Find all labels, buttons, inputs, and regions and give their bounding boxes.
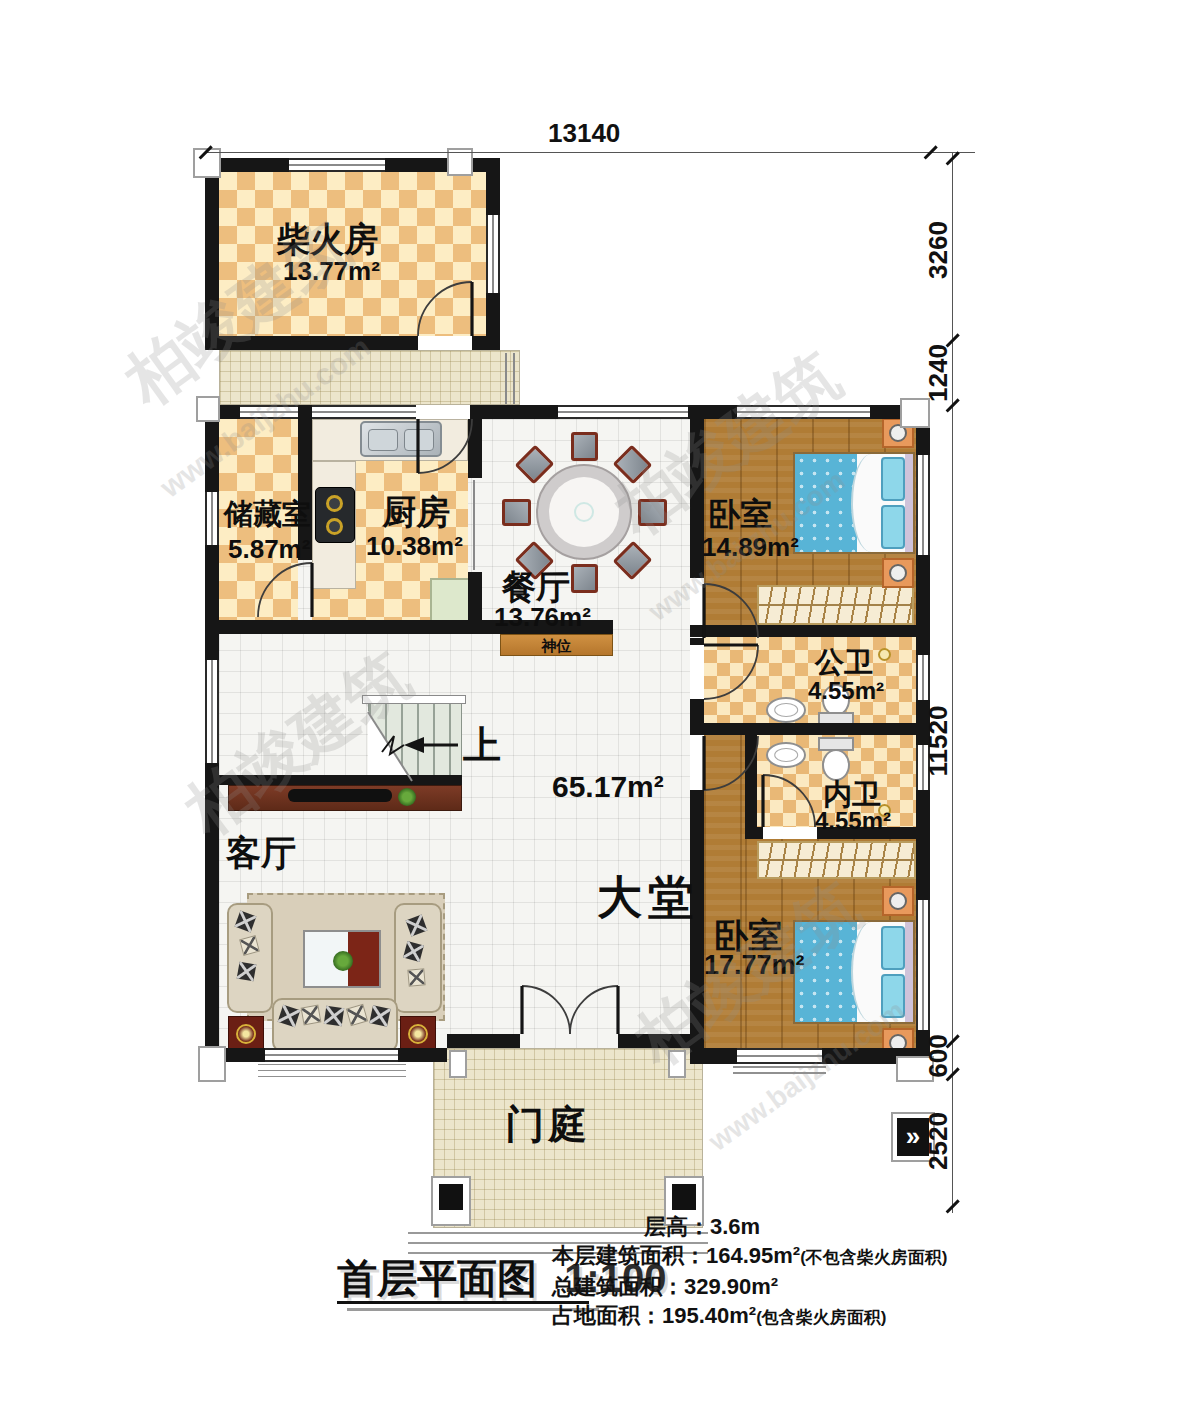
sofa-pillow [237,962,257,982]
dim-label-2520: 2520 [925,1101,951,1181]
plant [398,788,416,806]
tv-feature-wall [219,775,462,785]
dim-label-3260: 3260 [925,210,951,290]
bedroom2-bed [793,920,915,1024]
bed-mattress [795,454,857,552]
room-label-porch: 门庭 [505,1105,591,1144]
wall [486,158,500,215]
wall [745,827,763,839]
bed-headboard [905,454,913,552]
dining-chair [571,564,598,593]
room-label-bedroom1: 卧室 [708,498,772,530]
window [737,405,870,419]
room-label-firewood: 柴火房 [276,222,378,256]
room-label-storage: 储藏室 [224,500,311,529]
window [486,215,500,293]
footer-line-total-area: 总建筑面积：329.90m² [552,1272,1172,1301]
stair-landing [362,695,466,704]
wall [447,1034,520,1048]
room-area-firewood: 13.77m² [283,258,380,284]
footer-note: (不包含柴火房面积) [800,1248,947,1267]
dining-chair [571,432,598,461]
room-label-bedroom2: 卧室 [714,918,782,952]
footer-value: 3.6m [710,1214,760,1239]
private-bath-sink [766,742,806,768]
room-area-hall: 65.17m² [552,772,664,802]
footer-title-text: 首层平面图 [337,1256,537,1300]
dim-label-11520: 11520 [925,696,951,786]
window [205,492,219,545]
wall [205,336,418,350]
wall [916,555,930,655]
bedroom2-corridor-floor [704,735,745,1048]
nightstand [882,886,914,916]
sofa-pillow [407,968,425,986]
sink-basin [368,429,398,451]
sofa-pillow [369,1005,390,1026]
window-sill [733,1066,826,1078]
wall [472,336,500,350]
wall [468,419,482,478]
sofa-pillow [324,1006,344,1026]
corner-marker [196,396,220,422]
bed-pillow [881,457,905,501]
room-area-dining: 13.76m² [494,604,591,630]
room-area-storage: 5.87m² [228,536,310,562]
sofa-pillow [301,1005,322,1026]
shrine-cabinet: 神位 [500,634,613,656]
wall [205,545,219,660]
wall [385,158,500,172]
wall [690,638,704,645]
sofa-main [272,998,398,1052]
wall [219,620,482,634]
footer-value: 164.95m² [706,1243,800,1268]
wall [690,625,916,637]
sofa-pillow [278,1005,301,1028]
walkway-floor [219,350,520,405]
plant [333,951,353,971]
bed-blanket [851,922,885,1022]
room-label-hall: 大堂 [597,875,699,920]
private-bath-toilet-bowl [822,749,850,781]
footer-label: 本层建筑面积： [552,1243,706,1268]
room-area-public-bath: 4.55m² [808,679,884,703]
dining-table [536,464,632,560]
window [737,1048,822,1064]
dim-line-top [205,152,975,153]
wall [205,763,219,1062]
room-area-bedroom1: 14.89m² [702,534,799,560]
window-sill [258,1064,406,1079]
window [205,660,219,763]
porch-pillar [449,1050,467,1078]
tv [288,789,392,802]
room-area-kitchen: 10.38m² [366,533,463,559]
window [916,455,930,555]
window [916,900,930,1030]
bedroom1-bed [793,452,915,554]
porch-pillar [668,1050,686,1078]
wall [690,723,916,735]
window [289,158,385,172]
sink-basin [404,429,434,451]
wall [690,1048,737,1064]
corner-marker [198,1046,226,1082]
wall [398,1048,447,1062]
room-area-bedroom2: 17.77m² [704,952,805,979]
kitchen-sink [360,421,442,457]
footer-value: 329.90m² [684,1274,778,1299]
stairs-up-label: 上 [463,726,501,764]
nightstand [882,558,914,588]
dining-chair [502,499,531,526]
sofa-pillow [406,915,428,937]
public-bath-sink [766,697,806,723]
bed-pillow [881,974,905,1018]
kitchen-fridge [430,578,470,622]
footer-value: 195.40m² [662,1303,756,1328]
end-table-right [400,1016,436,1052]
dining-table-center [574,502,594,522]
footer-line-floor-area: 本层建筑面积：164.95m²(不包含柴火房面积) [552,1241,1172,1272]
public-bath-drain [878,648,891,661]
room-label-dining: 餐厅 [502,570,570,604]
window [265,1048,398,1062]
sofa-pillow [235,911,257,933]
bedroom2-wardrobe [757,841,916,879]
footer-label: 占地面积： [552,1303,662,1328]
shrine-label: 神位 [542,637,572,654]
sofa-pillow [346,1004,368,1026]
bedroom1-wardrobe [757,585,914,625]
stove-burner [326,518,343,535]
porch-pillar-core [439,1184,463,1210]
dim-label-600: 600 [925,1021,951,1091]
footer-label: 层高： [644,1214,710,1239]
wall [298,405,312,419]
room-label-kitchen: 厨房 [382,495,450,529]
window [558,405,688,419]
wall [470,405,558,419]
sofa-pillow [403,941,424,962]
room-label-private-bath: 内卫 [823,780,881,809]
bed-blanket [851,454,885,552]
window [312,405,416,419]
loveseat-right [394,903,442,1013]
floor-plan-page: 神位 [0,0,1200,1426]
bed-pillow [881,926,905,970]
bed-pillow [881,505,905,549]
footer-line-land-area: 占地面积：195.40m²(包含柴火房面积) [552,1301,1172,1332]
wall [468,572,482,620]
dim-label-13140: 13140 [548,120,620,146]
wall [205,158,219,350]
dining-chair [638,499,667,526]
porch-pillar-core [672,1184,696,1210]
wall [916,790,930,900]
footer-info: 层高：3.6m 本层建筑面积：164.95m²(不包含柴火房面积) 总建筑面积：… [552,1212,1172,1332]
coffee-table [303,930,381,988]
bed-headboard [905,922,913,1022]
kitchen-stove [315,487,355,543]
footer-line-height: 层高：3.6m [552,1212,1172,1241]
window [240,405,298,419]
room-label-public-bath: 公卫 [815,648,873,677]
window [916,655,930,700]
loveseat-left [227,903,273,1013]
sofa-pillow [239,935,260,956]
footer-label: 总建筑面积： [552,1274,684,1299]
end-table-left [228,1016,264,1052]
wall [745,735,757,827]
room-label-living: 客厅 [226,835,296,870]
footer-note: (包含柴火房面积) [756,1308,886,1327]
room-area-private-bath: 4.55m² [815,809,891,833]
stove-burner [326,495,343,512]
dim-label-1240: 1240 [925,333,951,413]
